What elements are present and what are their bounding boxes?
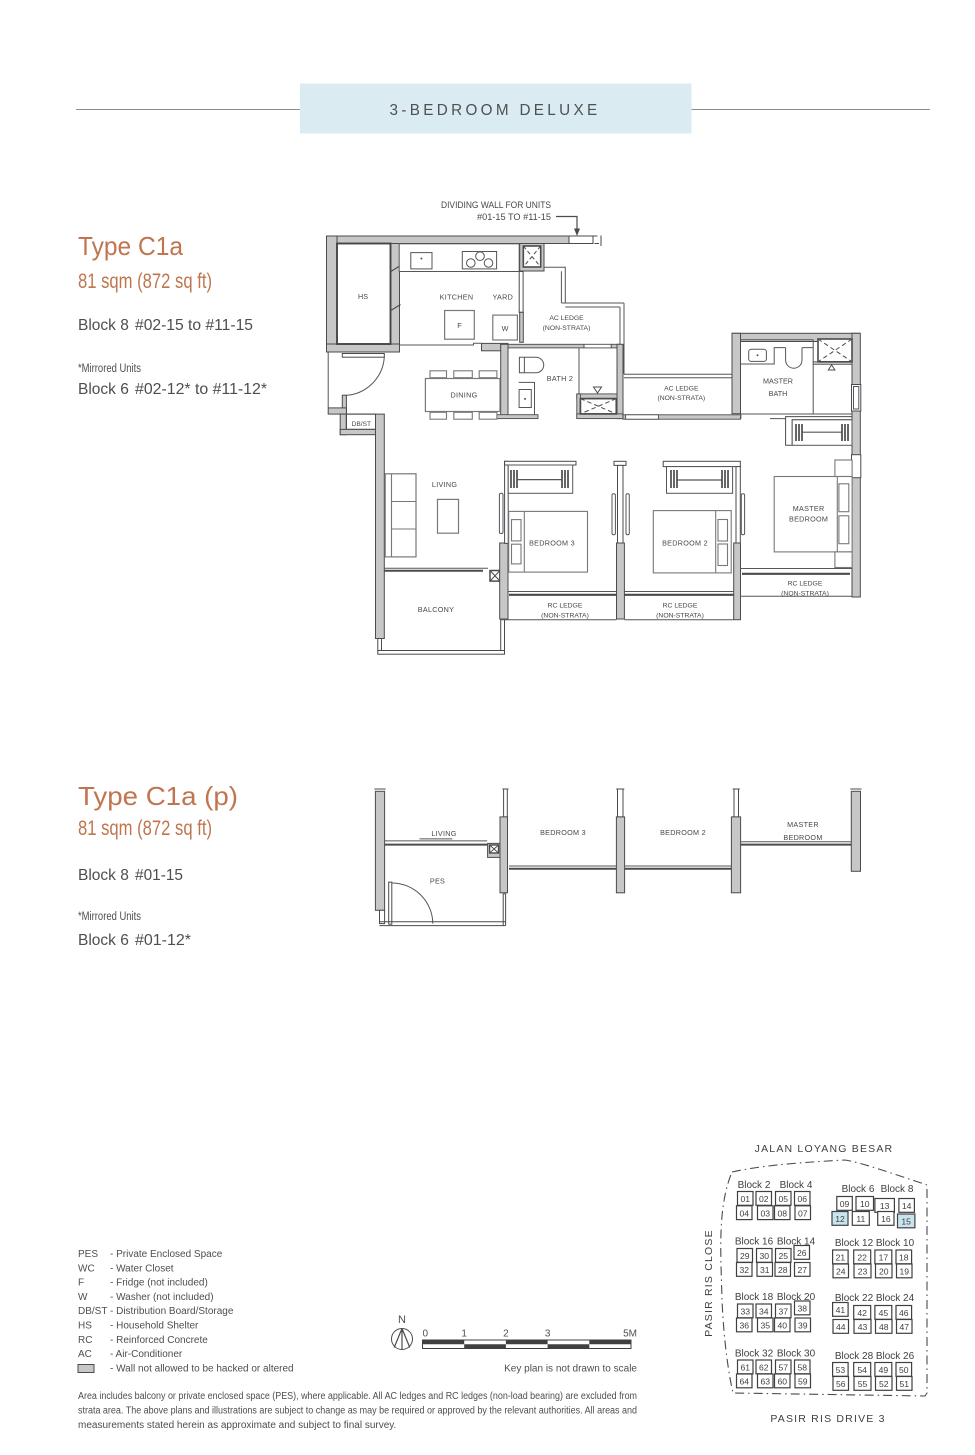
svg-text:12: 12 bbox=[835, 1214, 845, 1224]
svg-text:BEDROOM 3: BEDROOM 3 bbox=[540, 828, 586, 837]
svg-text:52: 52 bbox=[879, 1379, 889, 1389]
svg-text:PASIR RIS DRIVE 3: PASIR RIS DRIVE 3 bbox=[770, 1413, 885, 1425]
svg-text:BEDROOM: BEDROOM bbox=[783, 833, 822, 842]
svg-text:44: 44 bbox=[836, 1322, 846, 1332]
svg-text:F: F bbox=[78, 1278, 84, 1289]
svg-text:42: 42 bbox=[857, 1308, 867, 1318]
svg-text:BEDROOM 3: BEDROOM 3 bbox=[529, 539, 575, 548]
svg-text:60: 60 bbox=[777, 1377, 787, 1387]
svg-text:AC LEDGE: AC LEDGE bbox=[664, 386, 699, 393]
svg-text:MASTER: MASTER bbox=[763, 377, 793, 386]
svg-text:Type C1a: Type C1a bbox=[78, 231, 184, 261]
svg-text:64: 64 bbox=[739, 1377, 749, 1387]
svg-text:14: 14 bbox=[902, 1201, 912, 1211]
svg-text:BEDROOM 2: BEDROOM 2 bbox=[660, 828, 706, 837]
svg-text:BATH 2: BATH 2 bbox=[547, 374, 573, 383]
svg-text:WC: WC bbox=[78, 1263, 95, 1274]
svg-text:45: 45 bbox=[879, 1308, 889, 1318]
svg-text:30: 30 bbox=[759, 1251, 769, 1261]
svg-text:Block 2: Block 2 bbox=[738, 1180, 771, 1191]
svg-text:21: 21 bbox=[836, 1253, 846, 1263]
svg-text:31: 31 bbox=[760, 1265, 770, 1275]
svg-text:(NON-STRATA): (NON-STRATA) bbox=[543, 325, 591, 332]
svg-text:05: 05 bbox=[778, 1194, 788, 1204]
svg-text:32: 32 bbox=[739, 1265, 749, 1275]
svg-text:16: 16 bbox=[881, 1214, 891, 1224]
svg-text:Block 18: Block 18 bbox=[735, 1292, 774, 1303]
svg-text:Block 8: Block 8 bbox=[78, 317, 129, 334]
svg-text:29: 29 bbox=[740, 1251, 750, 1261]
svg-text:strata area. The above plans a: strata area. The above plans and illustr… bbox=[78, 1406, 637, 1417]
svg-text:HS: HS bbox=[78, 1321, 92, 1332]
svg-text:(NON-STRATA): (NON-STRATA) bbox=[657, 395, 705, 402]
svg-text:LIVING: LIVING bbox=[431, 829, 456, 838]
svg-text:15: 15 bbox=[901, 1217, 911, 1227]
svg-text:Block 4: Block 4 bbox=[780, 1180, 813, 1191]
svg-text:19: 19 bbox=[899, 1267, 909, 1277]
svg-text:51: 51 bbox=[899, 1379, 909, 1389]
svg-text:Block 8: Block 8 bbox=[881, 1184, 914, 1195]
svg-text:MASTER: MASTER bbox=[787, 820, 819, 829]
svg-text:(NON-STRATA): (NON-STRATA) bbox=[781, 591, 829, 598]
svg-text:AC LEDGE: AC LEDGE bbox=[549, 315, 584, 322]
svg-text:BEDROOM: BEDROOM bbox=[789, 515, 828, 524]
svg-text:DINING: DINING bbox=[451, 391, 478, 400]
svg-text:34: 34 bbox=[759, 1307, 769, 1317]
svg-text:25: 25 bbox=[778, 1251, 788, 1261]
svg-text:YARD: YARD bbox=[492, 293, 513, 302]
svg-text:10: 10 bbox=[860, 1199, 870, 1209]
svg-text:F: F bbox=[457, 321, 462, 330]
svg-text:(NON-STRATA): (NON-STRATA) bbox=[656, 613, 704, 620]
svg-text:56: 56 bbox=[836, 1379, 846, 1389]
svg-text:1: 1 bbox=[461, 1329, 467, 1340]
svg-text:N: N bbox=[398, 1314, 406, 1326]
svg-text:0: 0 bbox=[423, 1329, 429, 1340]
svg-text:PES: PES bbox=[78, 1249, 98, 1260]
svg-text:48: 48 bbox=[879, 1322, 889, 1332]
svg-text:RC LEDGE: RC LEDGE bbox=[663, 603, 698, 610]
svg-text:- Air-Conditioner: - Air-Conditioner bbox=[110, 1349, 183, 1360]
svg-text:18: 18 bbox=[899, 1253, 909, 1263]
svg-text:*Mirrored Units: *Mirrored Units bbox=[78, 911, 141, 923]
svg-text:46: 46 bbox=[899, 1308, 909, 1318]
svg-text:33: 33 bbox=[740, 1307, 750, 1317]
svg-text:36: 36 bbox=[739, 1321, 749, 1331]
svg-text:#01-12*: #01-12* bbox=[135, 932, 191, 949]
svg-text:22: 22 bbox=[857, 1253, 867, 1263]
svg-text:AC: AC bbox=[78, 1349, 92, 1360]
svg-text:37: 37 bbox=[778, 1307, 788, 1317]
svg-text:W: W bbox=[502, 324, 509, 333]
svg-text:61: 61 bbox=[740, 1363, 750, 1373]
svg-text:Key plan is not drawn to scale: Key plan is not drawn to scale bbox=[504, 1363, 637, 1374]
svg-text:54: 54 bbox=[857, 1365, 867, 1375]
svg-text:81 sqm (872 sq ft): 81 sqm (872 sq ft) bbox=[78, 816, 212, 840]
svg-text:03: 03 bbox=[760, 1208, 770, 1218]
svg-text:2: 2 bbox=[503, 1329, 509, 1340]
svg-text:13: 13 bbox=[880, 1201, 890, 1211]
svg-text:Block 8: Block 8 bbox=[78, 867, 129, 884]
svg-text:PES: PES bbox=[430, 877, 445, 886]
svg-text:#01-15: #01-15 bbox=[135, 867, 183, 884]
svg-text:RC: RC bbox=[78, 1335, 92, 1346]
svg-text:LIVING: LIVING bbox=[432, 480, 457, 489]
svg-text:43: 43 bbox=[858, 1322, 868, 1332]
svg-text:Block 6: Block 6 bbox=[78, 381, 129, 398]
svg-text:RC LEDGE: RC LEDGE bbox=[788, 581, 823, 588]
svg-text:02: 02 bbox=[759, 1194, 769, 1204]
svg-text:38: 38 bbox=[797, 1304, 807, 1314]
svg-text:24: 24 bbox=[836, 1267, 846, 1277]
svg-text:- Reinforced Concrete: - Reinforced Concrete bbox=[110, 1335, 208, 1346]
svg-text:HS: HS bbox=[358, 292, 368, 301]
svg-text:Block 28: Block 28 bbox=[835, 1351, 874, 1362]
svg-text:- Household Shelter: - Household Shelter bbox=[110, 1321, 199, 1332]
svg-text:DB/ST: DB/ST bbox=[78, 1306, 107, 1317]
svg-text:- Private Enclosed Space: - Private Enclosed Space bbox=[110, 1249, 223, 1260]
svg-text:08: 08 bbox=[777, 1208, 787, 1218]
svg-text:23: 23 bbox=[858, 1267, 868, 1277]
svg-text:Block 16: Block 16 bbox=[735, 1237, 774, 1248]
svg-text:Block 26: Block 26 bbox=[876, 1351, 915, 1362]
svg-text:49: 49 bbox=[879, 1365, 889, 1375]
svg-text:Block 30: Block 30 bbox=[777, 1349, 816, 1360]
svg-text:39: 39 bbox=[798, 1321, 808, 1331]
svg-text:28: 28 bbox=[778, 1265, 788, 1275]
svg-text:27: 27 bbox=[797, 1265, 807, 1275]
svg-text:- Washer (not included): - Washer (not included) bbox=[110, 1292, 214, 1303]
svg-text:57: 57 bbox=[778, 1363, 788, 1373]
svg-text:Block 12: Block 12 bbox=[835, 1238, 874, 1249]
svg-text:- Distribution Board/Storage: - Distribution Board/Storage bbox=[110, 1306, 234, 1317]
svg-text:47: 47 bbox=[899, 1322, 909, 1332]
svg-text:40: 40 bbox=[777, 1321, 787, 1331]
svg-text:Block 10: Block 10 bbox=[876, 1238, 915, 1249]
svg-text:PASIR RIS CLOSE: PASIR RIS CLOSE bbox=[703, 1229, 715, 1337]
svg-text:DIVIDING WALL FOR UNITS: DIVIDING WALL FOR UNITS bbox=[441, 200, 551, 210]
svg-text:- Water Closet: - Water Closet bbox=[110, 1263, 174, 1274]
svg-text:MASTER: MASTER bbox=[793, 504, 825, 513]
svg-text:#02-15 to #11-15: #02-15 to #11-15 bbox=[135, 317, 253, 334]
svg-text:3: 3 bbox=[545, 1329, 551, 1340]
svg-text:*Mirrored Units: *Mirrored Units bbox=[78, 363, 141, 375]
svg-text:#02-12* to #11-12*: #02-12* to #11-12* bbox=[135, 381, 267, 398]
svg-text:50: 50 bbox=[899, 1365, 909, 1375]
svg-text:Area includes balcony or priva: Area includes balcony or private enclose… bbox=[78, 1391, 637, 1402]
svg-text:RC LEDGE: RC LEDGE bbox=[548, 603, 583, 610]
svg-text:41: 41 bbox=[836, 1305, 846, 1315]
svg-text:DB/ST: DB/ST bbox=[352, 421, 371, 428]
svg-text:26: 26 bbox=[797, 1248, 807, 1258]
svg-text:KITCHEN: KITCHEN bbox=[440, 293, 474, 302]
svg-text:Type C1a (p): Type C1a (p) bbox=[78, 781, 238, 811]
svg-text:55: 55 bbox=[858, 1379, 868, 1389]
svg-text:Block 32: Block 32 bbox=[735, 1349, 774, 1360]
svg-text:W: W bbox=[78, 1292, 88, 1303]
svg-text:81 sqm (872 sq ft): 81 sqm (872 sq ft) bbox=[78, 269, 212, 293]
svg-text:06: 06 bbox=[797, 1194, 807, 1204]
svg-text:11: 11 bbox=[856, 1214, 865, 1224]
svg-text:58: 58 bbox=[797, 1363, 807, 1373]
svg-text:(NON-STRATA): (NON-STRATA) bbox=[541, 613, 589, 620]
svg-text:53: 53 bbox=[836, 1365, 846, 1375]
svg-text:JALAN LOYANG BESAR: JALAN LOYANG BESAR bbox=[755, 1143, 894, 1155]
svg-text:09: 09 bbox=[840, 1199, 850, 1209]
svg-text:04: 04 bbox=[739, 1208, 749, 1218]
svg-text:01: 01 bbox=[740, 1194, 750, 1204]
svg-text:3-BEDROOM DELUXE: 3-BEDROOM DELUXE bbox=[390, 102, 601, 119]
svg-text:17: 17 bbox=[879, 1253, 889, 1263]
svg-text:#01-15 TO #11-15: #01-15 TO #11-15 bbox=[477, 212, 551, 222]
svg-text:20: 20 bbox=[879, 1267, 889, 1277]
svg-text:BALCONY: BALCONY bbox=[418, 605, 454, 614]
svg-text:5M: 5M bbox=[623, 1329, 637, 1340]
svg-text:07: 07 bbox=[798, 1208, 808, 1218]
svg-text:Block 6: Block 6 bbox=[78, 932, 129, 949]
svg-text:- Wall not allowed to be hacke: - Wall not allowed to be hacked or alter… bbox=[110, 1363, 294, 1374]
svg-text:Block 24: Block 24 bbox=[876, 1293, 915, 1304]
svg-text:Block 6: Block 6 bbox=[842, 1184, 875, 1195]
svg-text:35: 35 bbox=[760, 1321, 770, 1331]
svg-text:BEDROOM 2: BEDROOM 2 bbox=[662, 539, 708, 548]
svg-text:BATH: BATH bbox=[769, 389, 788, 398]
svg-text:62: 62 bbox=[759, 1363, 769, 1373]
svg-text:- Fridge (not included): - Fridge (not included) bbox=[110, 1278, 208, 1289]
svg-text:59: 59 bbox=[798, 1377, 808, 1387]
svg-text:63: 63 bbox=[760, 1377, 770, 1387]
svg-text:measurements stated herein as: measurements stated herein as approximat… bbox=[78, 1420, 396, 1431]
